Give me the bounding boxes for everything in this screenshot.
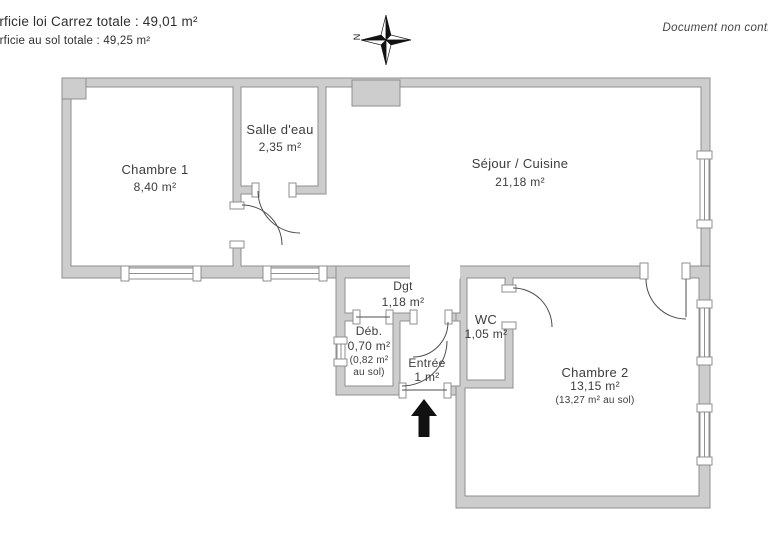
door-jamb (410, 310, 417, 324)
door-gap-wc (503, 287, 515, 327)
north-label: N (352, 34, 362, 41)
label-deb-area: 0,70 m² (348, 339, 391, 353)
window-cap (193, 266, 201, 281)
floor-plan-document: Superficie loi Carrez totale : 49,01 m² … (0, 0, 768, 560)
compass-rose: N (352, 15, 411, 65)
rooms (71, 87, 701, 496)
door-jamb (230, 241, 244, 248)
label-sejour-area: 21,18 m² (495, 175, 545, 189)
window-cap (697, 404, 712, 412)
floor-plan-drawing: N Chambre 1 8,40 m² Salle d'eau 2,35 m² … (0, 0, 768, 560)
label-salle-deau-name: Salle d'eau (246, 122, 313, 137)
window-cap (121, 266, 129, 281)
label-entree-name: Entrée (408, 356, 445, 370)
label-chambre-1-name: Chambre 1 (121, 162, 188, 177)
label-deb-note-1: (0,82 m² (350, 355, 389, 366)
label-wc-area: 1,05 m² (465, 327, 508, 341)
label-deb-note-2: au sol) (353, 367, 384, 378)
wall-notch (62, 78, 86, 99)
window-cap (334, 359, 347, 366)
window-cap (697, 151, 712, 159)
door-gap-entree-dgt (413, 311, 448, 323)
label-wc-name: WC (475, 312, 497, 327)
label-deb-name: Déb. (356, 324, 383, 338)
window-cap (697, 357, 712, 365)
window-cap (697, 457, 712, 465)
door-jamb (230, 202, 244, 209)
label-chambre-1-area: 8,40 m² (134, 180, 177, 194)
door-jamb (445, 310, 452, 324)
opening-sejour-dgt (410, 265, 460, 279)
label-chambre-2-name: Chambre 2 (561, 365, 628, 380)
label-chambre-2-note: (13,27 m² au sol) (556, 395, 635, 406)
door-gap-chambre-2 (642, 264, 688, 279)
wall-duct (352, 80, 400, 106)
label-dgt-name: Dgt (393, 279, 413, 293)
door-jamb (682, 263, 690, 279)
label-sejour-name: Séjour / Cuisine (472, 156, 569, 171)
window-cap (697, 220, 712, 228)
door-jamb (640, 263, 648, 279)
label-salle-deau-area: 2,35 m² (259, 140, 302, 154)
label-entree-area: 1 m² (414, 370, 439, 384)
window-cap (334, 337, 347, 344)
label-dgt-area: 1,18 m² (382, 295, 425, 309)
door-gap-chambre-1 (231, 205, 243, 245)
door-jamb (289, 183, 296, 197)
window-cap (697, 300, 712, 308)
entrance-arrow (411, 399, 437, 437)
window-cap (319, 266, 327, 281)
door-gap-salle-deau (256, 184, 292, 196)
window-cap (263, 266, 271, 281)
label-chambre-2-area: 13,15 m² (570, 379, 620, 393)
